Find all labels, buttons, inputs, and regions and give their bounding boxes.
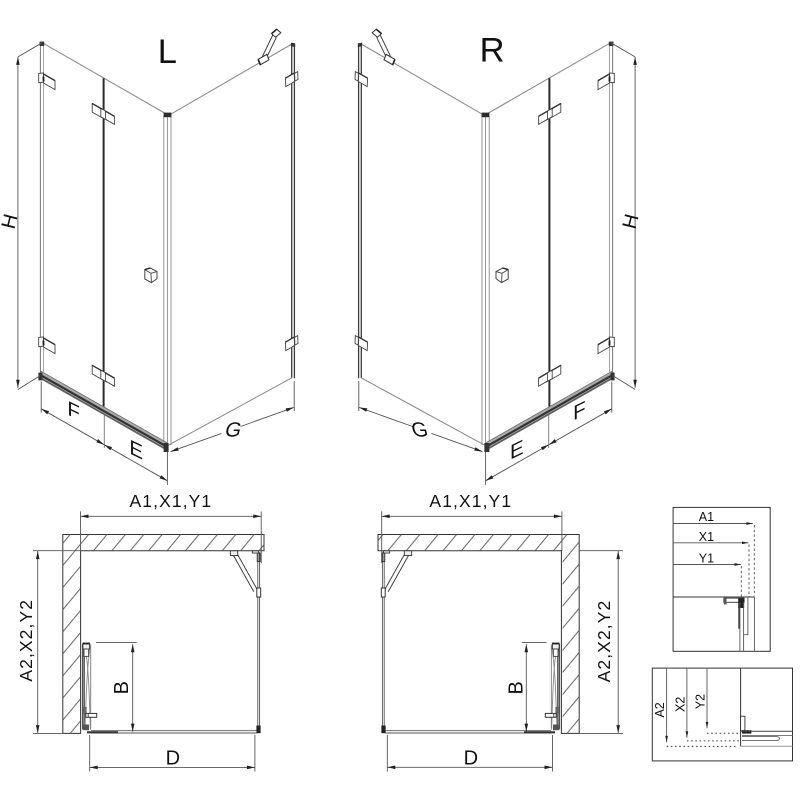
- svg-text:X2: X2: [674, 697, 688, 712]
- svg-text:A1,X1,Y1: A1,X1,Y1: [130, 491, 213, 511]
- svg-text:Y1: Y1: [699, 551, 714, 565]
- svg-text:A1,X1,Y1: A1,X1,Y1: [429, 491, 512, 511]
- svg-text:B: B: [505, 681, 527, 694]
- svg-text:D: D: [166, 747, 180, 769]
- svg-text:A2,X2,Y2: A2,X2,Y2: [594, 600, 614, 683]
- svg-text:X1: X1: [699, 530, 714, 544]
- svg-text:A1: A1: [699, 510, 714, 524]
- svg-text:A2: A2: [653, 702, 667, 717]
- svg-text:B: B: [111, 681, 133, 694]
- svg-text:Y2: Y2: [694, 694, 708, 709]
- svg-text:L: L: [158, 33, 177, 71]
- svg-text:A2,X2,Y2: A2,X2,Y2: [16, 599, 36, 682]
- svg-text:R: R: [480, 31, 505, 69]
- svg-text:D: D: [464, 747, 478, 769]
